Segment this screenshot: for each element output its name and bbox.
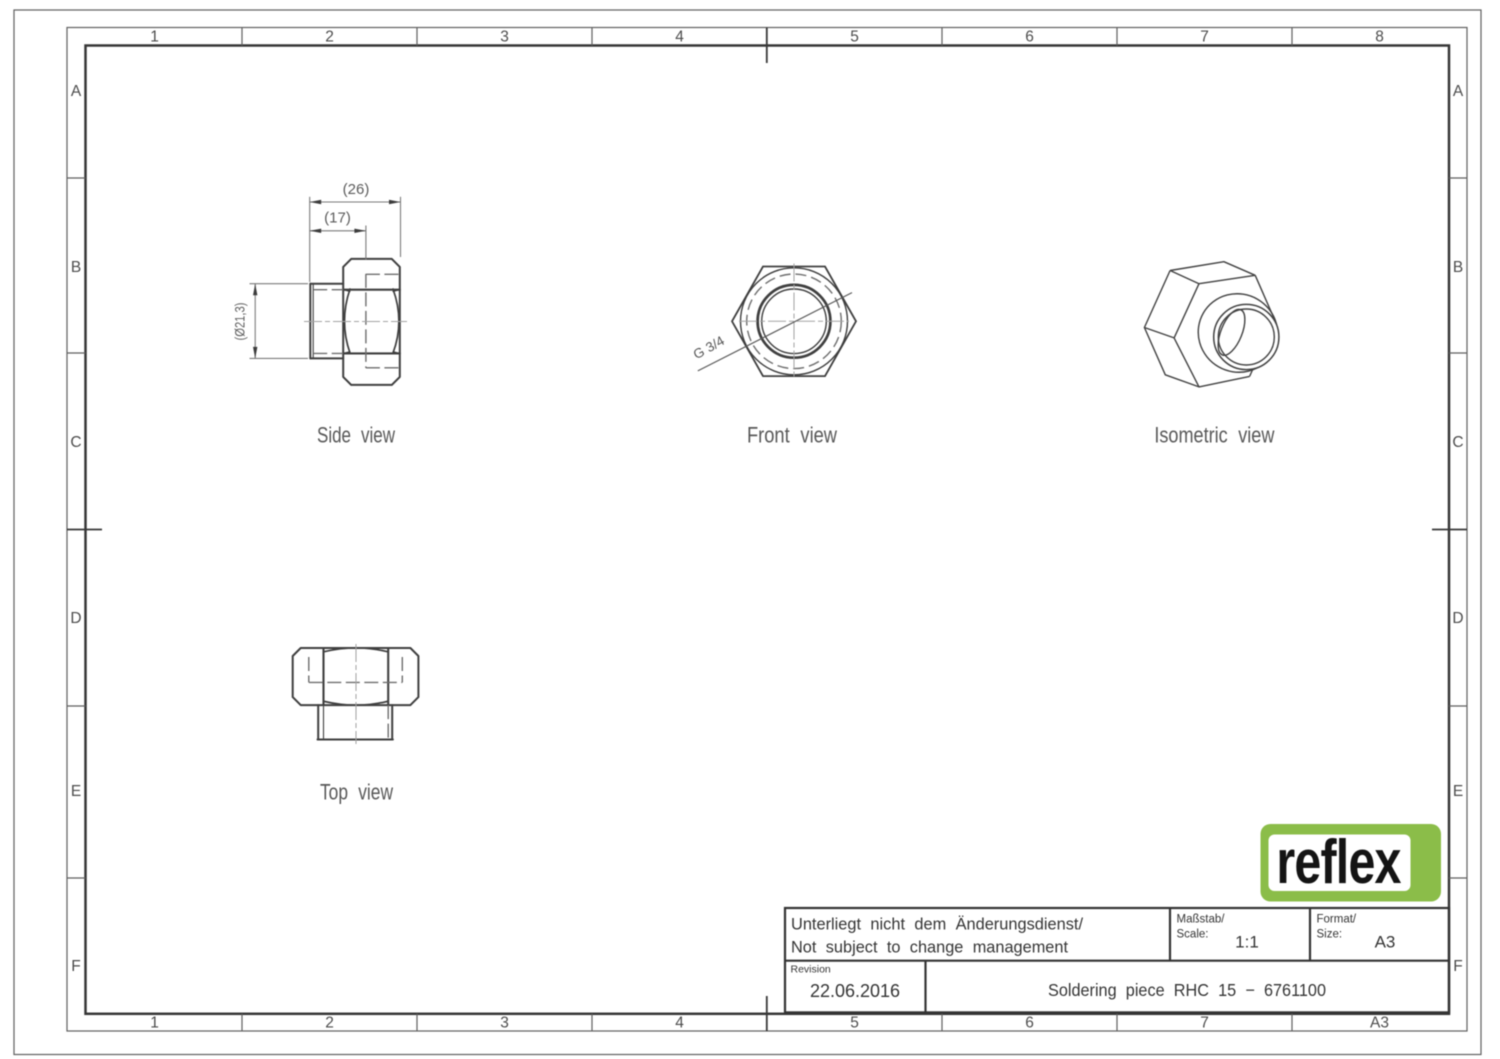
svg-text:Isometric view: Isometric view [1154, 423, 1275, 448]
svg-text:C: C [70, 434, 81, 451]
svg-text:3: 3 [500, 29, 509, 46]
svg-text:(26): (26) [343, 181, 370, 198]
svg-text:7: 7 [1200, 29, 1209, 46]
svg-text:Size:: Size: [1317, 929, 1343, 941]
svg-text:E: E [1453, 783, 1463, 800]
svg-text:3: 3 [500, 1015, 509, 1032]
svg-text:4: 4 [675, 1015, 684, 1032]
svg-text:Format/: Format/ [1317, 914, 1357, 926]
svg-text:Front view: Front view [747, 423, 838, 448]
svg-text:Unterliegt nicht dem Änderungs: Unterliegt nicht dem Änderungsdienst/ [791, 915, 1083, 934]
svg-text:A3: A3 [1370, 1015, 1389, 1032]
svg-text:Scale:: Scale: [1177, 929, 1209, 941]
svg-text:7: 7 [1200, 1015, 1209, 1032]
svg-text:A3: A3 [1375, 933, 1396, 952]
svg-text:8: 8 [1375, 29, 1384, 46]
svg-text:B: B [1453, 259, 1463, 276]
svg-text:6: 6 [1025, 1015, 1034, 1032]
svg-text:C: C [1452, 434, 1463, 451]
svg-text:B: B [71, 259, 81, 276]
svg-text:2: 2 [325, 1015, 334, 1032]
svg-text:D: D [1452, 610, 1463, 627]
svg-text:6: 6 [1025, 29, 1034, 46]
svg-text:F: F [71, 958, 80, 975]
svg-text:Soldering piece RHC 15 − 67611: Soldering piece RHC 15 − 6761100 [1048, 980, 1326, 1000]
svg-text:22.06.2016: 22.06.2016 [810, 981, 900, 1001]
svg-text:(17): (17) [324, 210, 351, 227]
svg-text:reflex: reflex [1276, 827, 1401, 896]
svg-text:Side view: Side view [317, 423, 396, 448]
svg-text:4: 4 [675, 29, 684, 46]
svg-text:F: F [1453, 958, 1462, 975]
svg-text:5: 5 [850, 29, 859, 46]
svg-text:Top view: Top view [320, 780, 394, 805]
svg-text:1: 1 [150, 29, 159, 46]
svg-text:(Ø21,3): (Ø21,3) [232, 303, 248, 341]
svg-text:1:1: 1:1 [1235, 933, 1259, 952]
svg-text:Maßstab/: Maßstab/ [1177, 914, 1226, 926]
svg-text:5: 5 [850, 1015, 859, 1032]
svg-text:A: A [1453, 83, 1464, 100]
svg-text:Revision: Revision [791, 964, 831, 976]
svg-text:Not subject to change manageme: Not subject to change management [791, 938, 1068, 957]
svg-text:D: D [70, 610, 81, 627]
svg-text:E: E [71, 783, 81, 800]
svg-text:A: A [71, 83, 82, 100]
svg-text:2: 2 [325, 29, 334, 46]
svg-text:1: 1 [150, 1015, 159, 1032]
